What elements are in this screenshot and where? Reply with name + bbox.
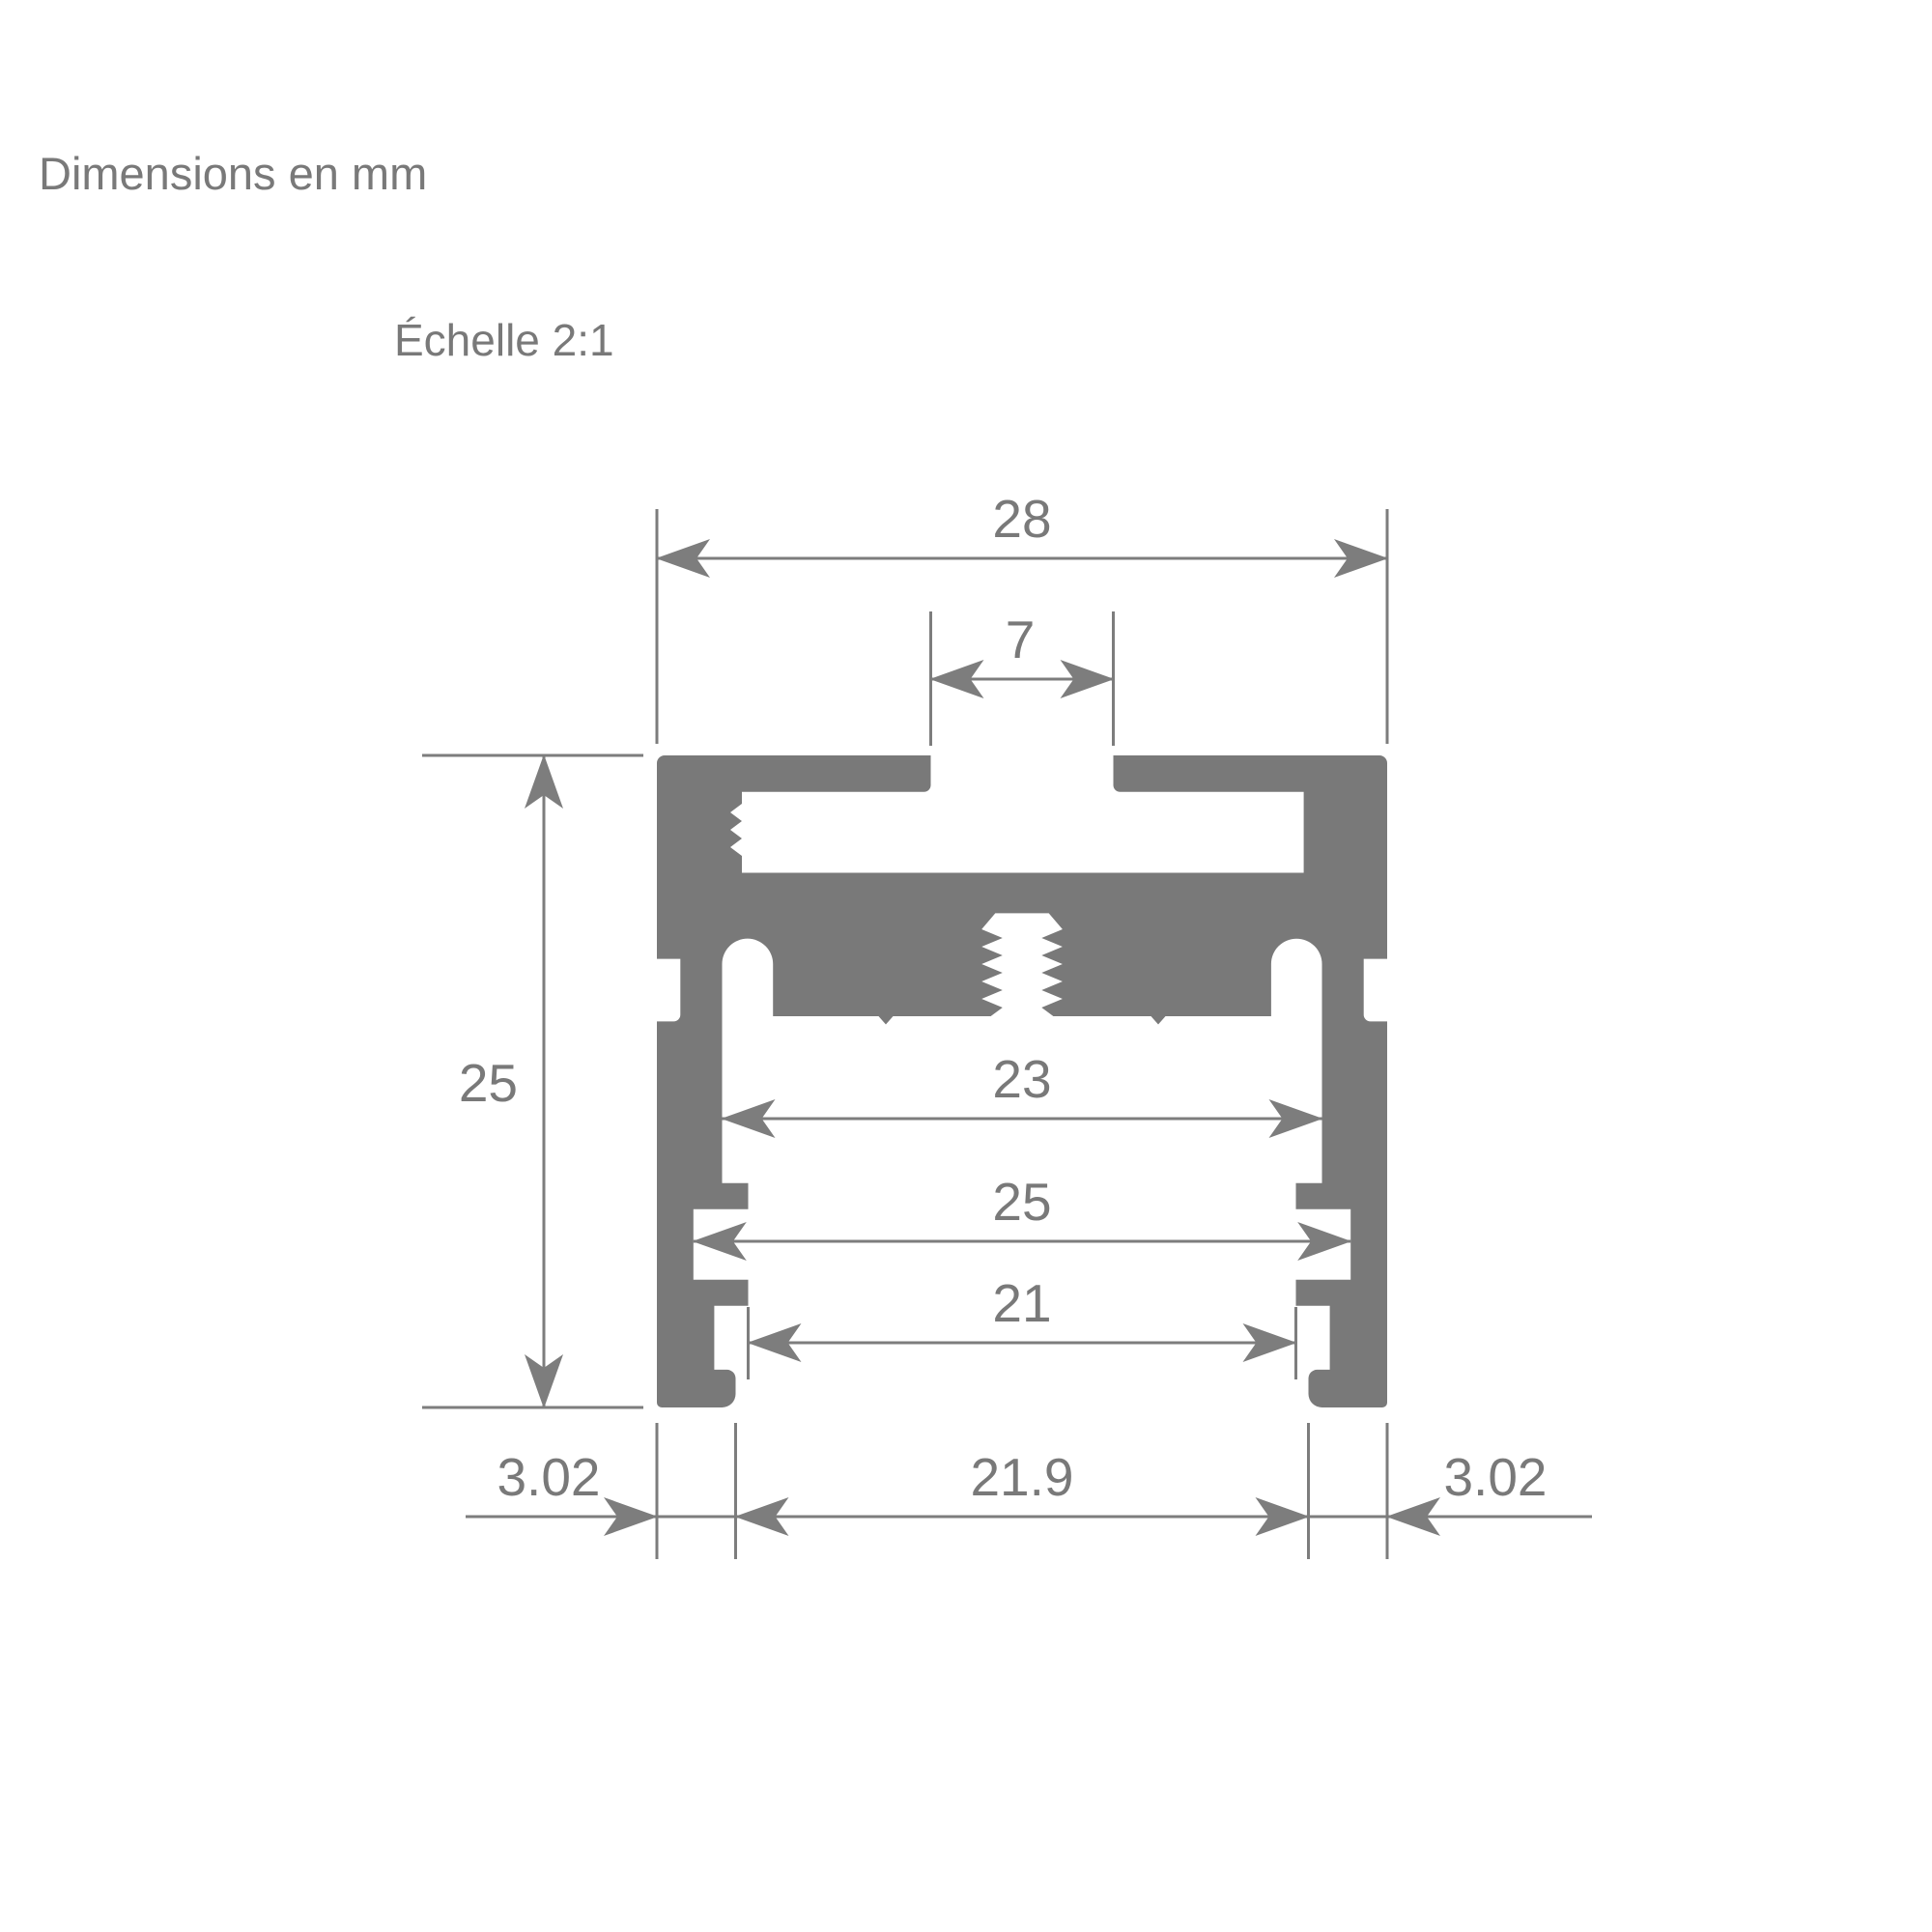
scale-note: Échelle 2:1 [394, 315, 614, 365]
dim-channel-width: 23 [723, 1049, 1322, 1119]
drawing-title: Dimensions en mm [39, 148, 427, 199]
dim-value-right-foot: 3.02 [1443, 1447, 1547, 1507]
dim-top-slot-width: 7 [931, 610, 1114, 746]
dim-value-left-foot: 3.02 [497, 1447, 600, 1507]
dim-value: 25 [459, 1053, 518, 1113]
dim-overall-height: 25 [422, 755, 643, 1407]
dim-value: 21 [992, 1273, 1051, 1333]
dim-value-bottom-opening: 21.9 [970, 1447, 1073, 1507]
dim-value: 7 [1006, 610, 1036, 669]
dim-value: 23 [992, 1049, 1051, 1109]
dim-value: 25 [992, 1172, 1051, 1232]
dim-bottom-group: 3.02 21.9 3.02 [466, 1423, 1592, 1559]
technical-drawing: Dimensions en mm Échelle 2:1 28 7 25 23 … [0, 0, 1932, 1932]
dim-clip-width: 21 [749, 1273, 1296, 1379]
dim-value: 28 [992, 489, 1051, 549]
dim-groove-width: 25 [694, 1172, 1350, 1241]
